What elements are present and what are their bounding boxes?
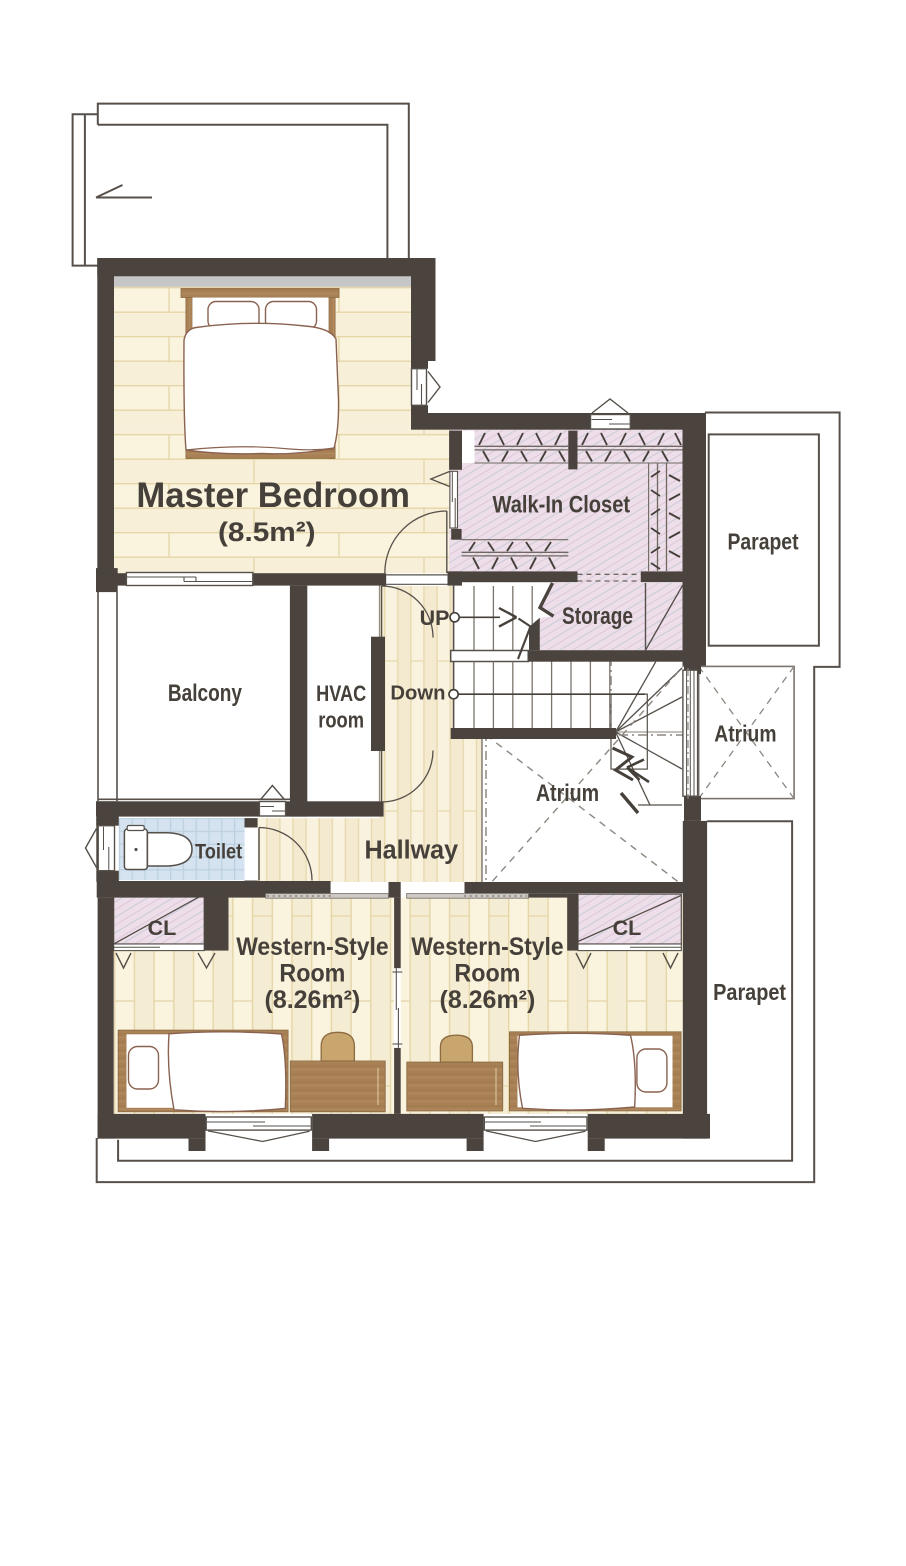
svg-text:Room: Room xyxy=(279,960,345,988)
svg-text:Parapet: Parapet xyxy=(713,979,786,1005)
svg-text:(8.26m²): (8.26m²) xyxy=(440,986,536,1014)
svg-text:CL: CL xyxy=(613,917,642,940)
svg-text:Toilet: Toilet xyxy=(195,841,242,864)
svg-text:Walk-In Closet: Walk-In Closet xyxy=(493,492,631,519)
svg-text:Atrium: Atrium xyxy=(536,780,599,807)
svg-text:(8.26m²): (8.26m²) xyxy=(265,986,361,1014)
svg-text:HVAC: HVAC xyxy=(316,681,366,706)
svg-text:Balcony: Balcony xyxy=(168,680,243,707)
svg-text:Master Bedroom: Master Bedroom xyxy=(136,476,410,515)
svg-text:UP: UP xyxy=(420,607,450,630)
svg-text:Parapet: Parapet xyxy=(727,529,798,555)
svg-text:Atrium: Atrium xyxy=(714,720,776,746)
svg-text:Down: Down xyxy=(390,681,445,704)
svg-text:(8.5m²): (8.5m²) xyxy=(218,517,316,547)
svg-text:CL: CL xyxy=(148,917,177,940)
svg-text:Storage: Storage xyxy=(562,603,633,630)
svg-text:Room: Room xyxy=(454,960,520,988)
svg-text:Hallway: Hallway xyxy=(365,837,459,865)
svg-text:room: room xyxy=(318,707,364,732)
svg-text:Western-Style: Western-Style xyxy=(411,933,563,961)
svg-text:Western-Style: Western-Style xyxy=(236,933,388,961)
